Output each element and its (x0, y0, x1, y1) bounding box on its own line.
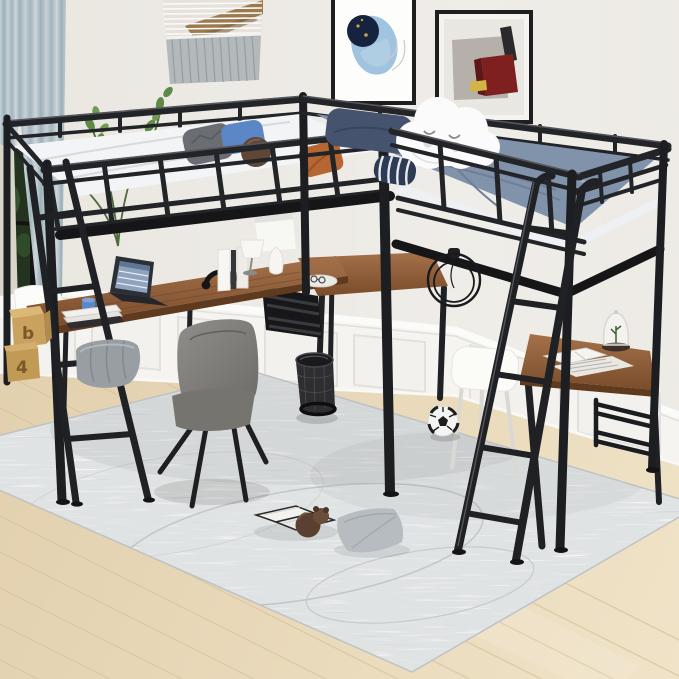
block-letter-bottom: 4 (16, 358, 28, 378)
stool-seat (451, 346, 520, 393)
soccer-ball (428, 406, 460, 442)
floor-cushion (76, 339, 140, 387)
scene-canvas: b 4 (0, 0, 679, 679)
picture-frame-a (333, 0, 414, 103)
blinds-window (163, 0, 263, 84)
chair-seat (172, 388, 255, 431)
block-letter-top: b (22, 324, 34, 344)
product-photo: b 4 (0, 0, 679, 679)
